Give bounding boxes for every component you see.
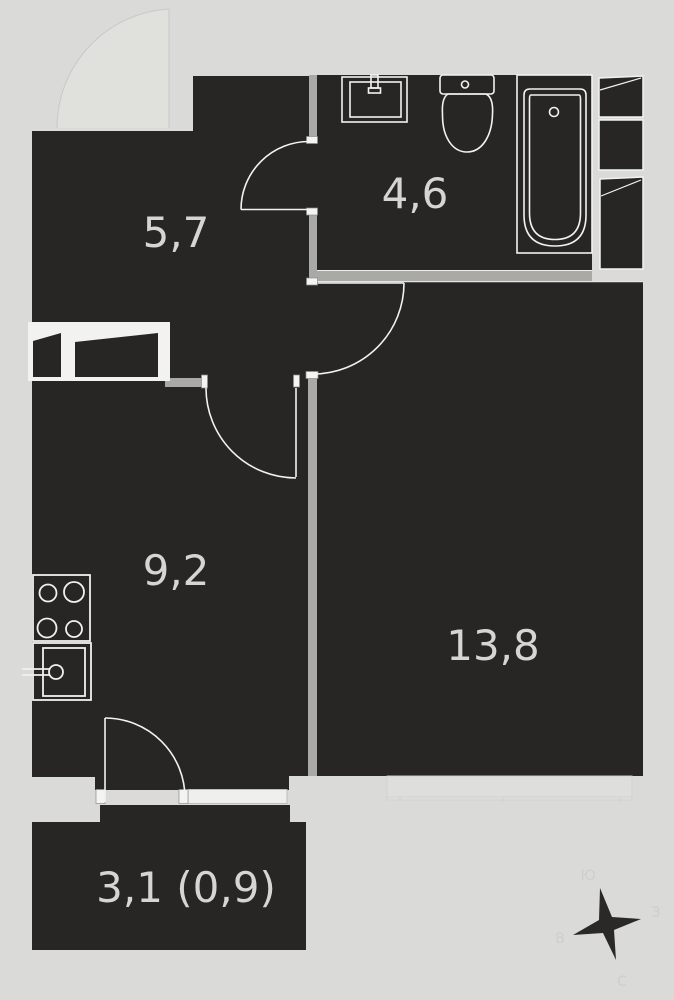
balcony-wall-strip [100,805,290,823]
wall-kitchen-living [308,377,317,776]
door-opening-living [309,283,317,373]
jamb-cap [307,137,318,144]
compass-label-top: Ю [580,868,595,884]
jamb-cap [306,372,318,379]
door-opening-bathroom [309,140,317,210]
jamb-cap [307,208,318,215]
jamb-cap [96,790,105,804]
wall-hall-bath-bottom [309,213,317,271]
room-bathroom [317,75,592,271]
room-label-kitchen: 9,2 [143,546,210,595]
room-label-balcony: 3,1 (0,9) [96,863,276,912]
vent-box-hallway [28,322,170,381]
kitchen-window [188,790,287,804]
wall-hall-bath-top [309,75,317,137]
jamb-cap [179,790,188,804]
room-label-bathroom: 4,6 [382,169,449,218]
jamb-cap [307,278,318,285]
compass-label-left: В [555,931,565,947]
compass-label-bottom: С [617,974,627,990]
floor-plan-page: 5,7 4,6 9,2 13,8 3,1 (0,9) Ю З С В [0,0,674,1000]
wall-hall-kitchen [165,378,204,387]
living-room-window [387,776,632,802]
room-label-hallway: 5,7 [143,208,210,257]
jamb-cap [202,375,208,388]
room-label-living-room: 13,8 [446,621,540,670]
compass-label-right: З [652,905,661,921]
floor-plan: 5,7 4,6 9,2 13,8 3,1 (0,9) Ю З С В [0,0,674,1000]
jamb-cap [294,375,300,387]
wall-bathroom-bottom [309,271,592,281]
